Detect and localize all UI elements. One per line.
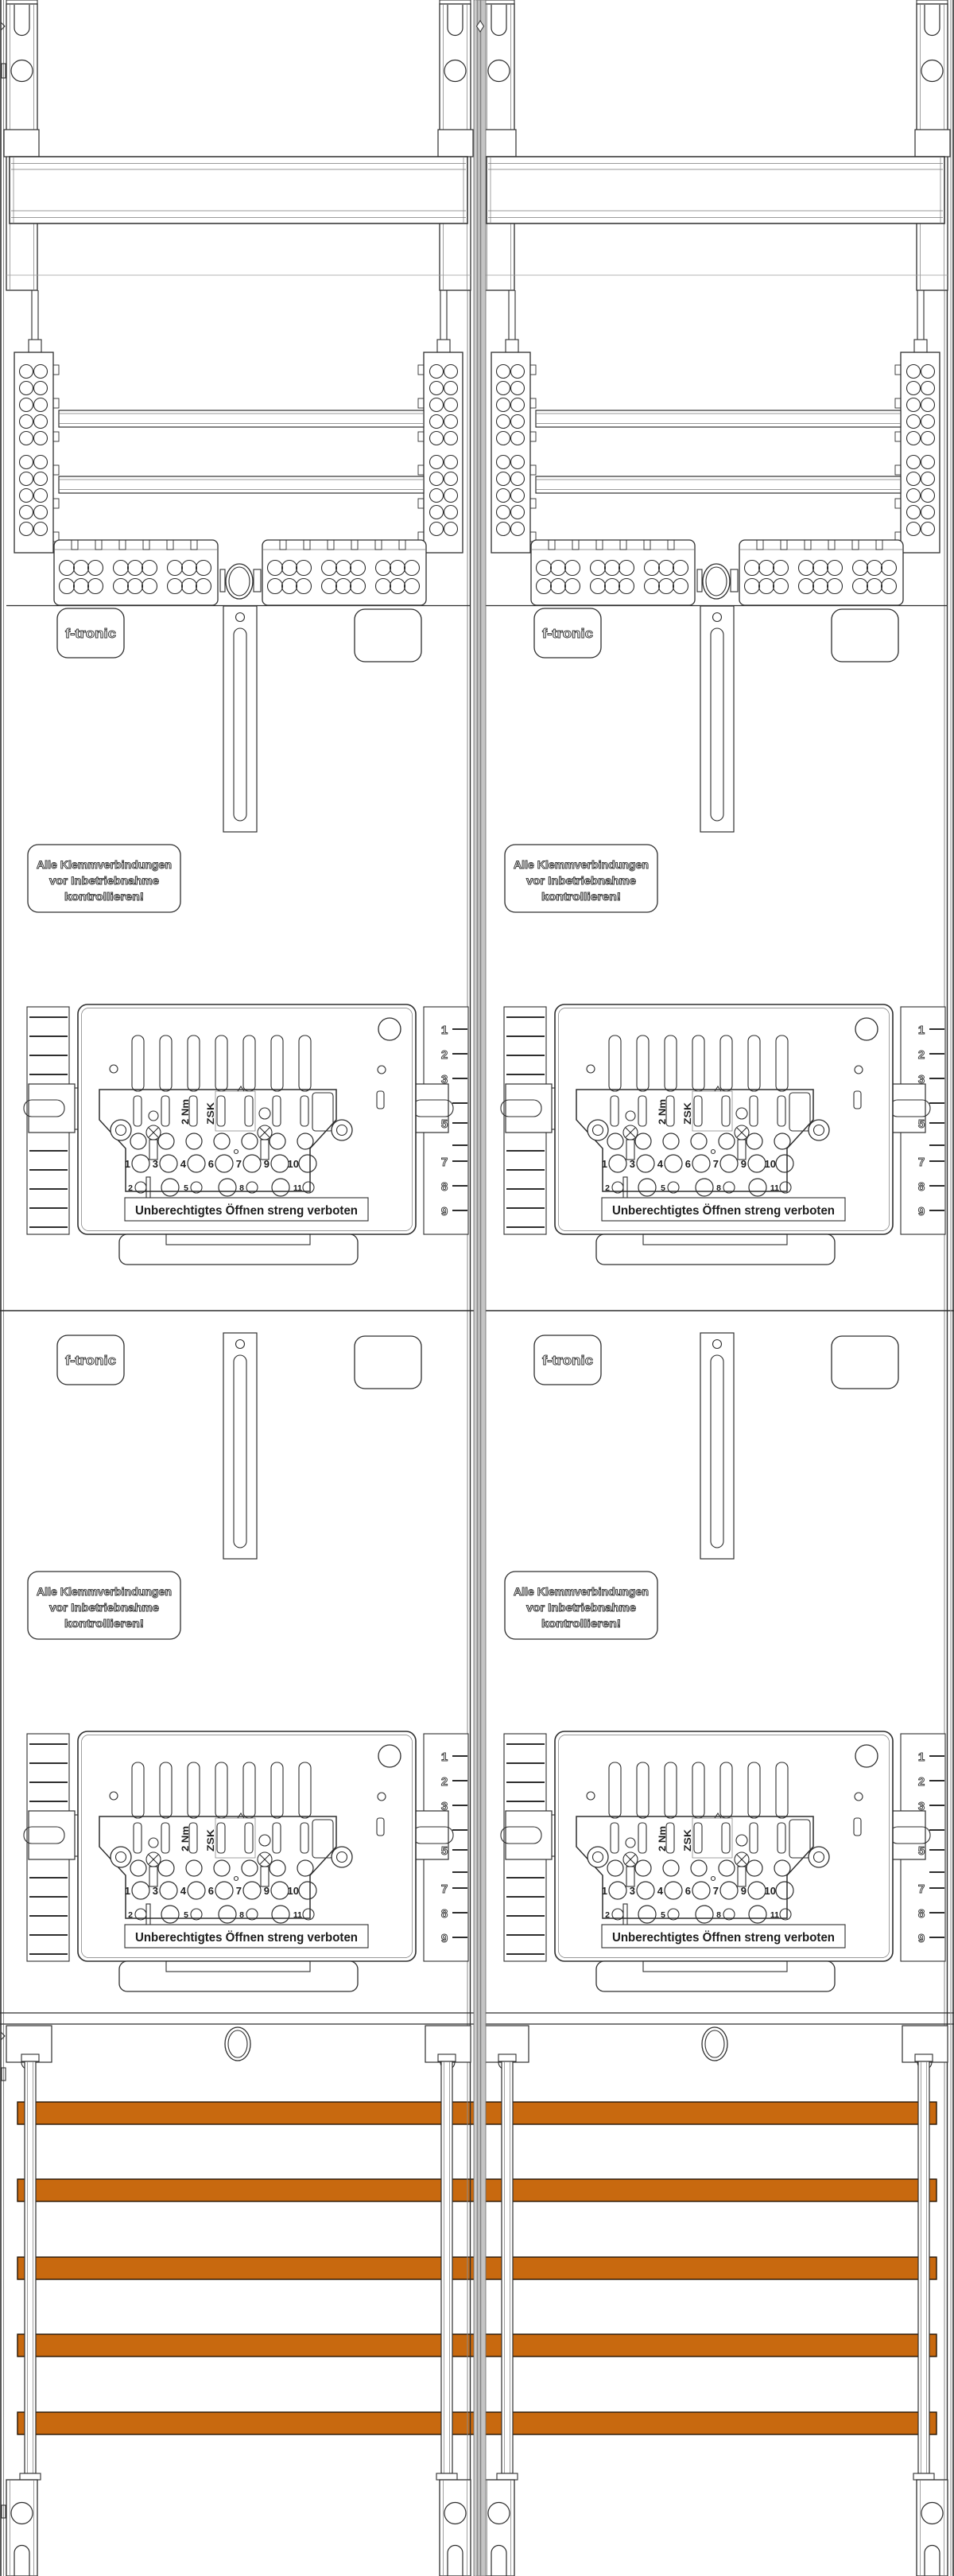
meter-cabinet-drawing: f-tronic Alle Klemmverbindungen vor Inbe… [0,0,954,2576]
right-edge-wall [951,0,953,2576]
center-junction-strip [474,0,486,2576]
